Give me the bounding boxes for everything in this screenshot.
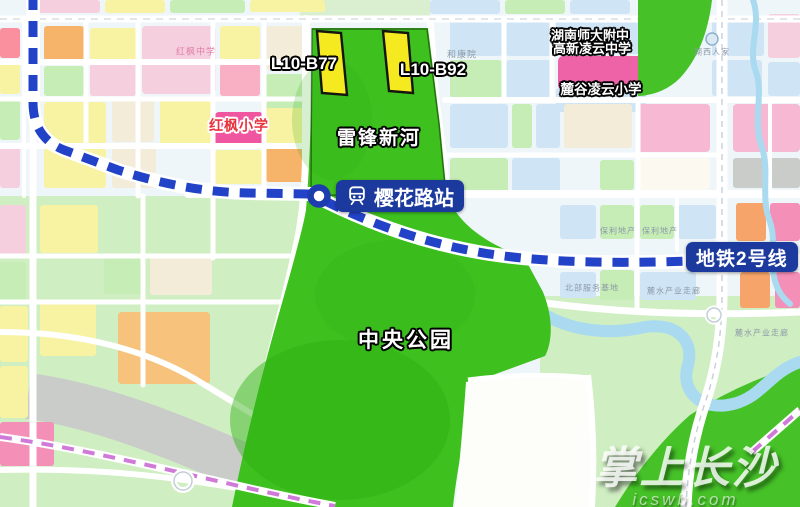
white-plot [455,375,592,507]
station-label: 樱花路站 [336,180,464,212]
industry-corridor-label-2: 麓水产业走廊 [735,328,789,339]
planning-map: L10-B77 L10-B92 雷锋新河 中央公园 红枫小学 湖南师大附中 高新… [0,0,800,507]
lugu-lingyun-primary-label: 麓谷凌云小学 [561,83,642,97]
metro-line-name-text: 地铁2号线 [696,244,788,271]
hekangyuan-label: 和康院 [447,48,477,61]
park-name-label: 中央公园 [358,330,454,352]
hongfeng-middle-label: 红枫中学 [176,45,216,58]
industry-corridor-label-1: 麓水产业走廊 [647,286,701,297]
hongfeng-primary-label: 红枫小学 [209,119,269,134]
station-name-text: 樱花路站 [374,182,454,211]
metro-line-2-label: 地铁2号线 [686,242,798,272]
station-marker [311,188,328,205]
community-logo [706,33,718,45]
train-icon [346,185,368,207]
affiliated-middle-label-line2: 高新凌云中学 [553,42,631,56]
baoli-estate-label-1: 保利地产 [600,226,636,237]
river-name-label: 雷锋新河 [337,129,421,149]
plot-b77-label: L10-B77 [271,55,337,73]
baoli-estate-label-2: 保利地产 [642,226,678,237]
north-service-base-label: 北部服务基地 [565,283,619,294]
plot-b92-label: L10-B92 [400,61,466,79]
huxi-renjia-label: 湖西人家 [694,47,730,58]
